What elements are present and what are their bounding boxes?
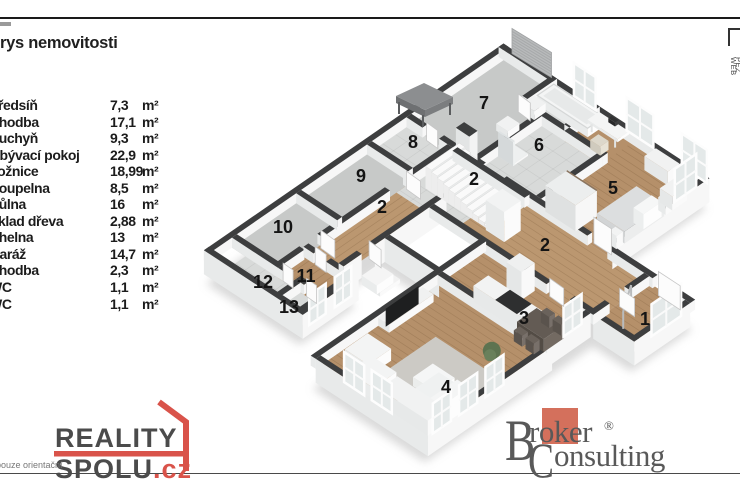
svg-text:12: 12 xyxy=(253,272,273,292)
svg-text:2: 2 xyxy=(377,197,387,217)
svg-text:2: 2 xyxy=(540,235,550,255)
svg-text:6: 6 xyxy=(534,135,544,155)
svg-text:1: 1 xyxy=(640,309,650,329)
svg-text:5: 5 xyxy=(608,178,618,198)
svg-text:2: 2 xyxy=(469,169,479,189)
svg-text:4: 4 xyxy=(441,377,451,397)
svg-text:3: 3 xyxy=(519,308,529,328)
svg-text:11: 11 xyxy=(296,266,315,286)
svg-text:10: 10 xyxy=(273,217,293,237)
svg-text:8: 8 xyxy=(408,132,418,152)
svg-text:7: 7 xyxy=(479,93,489,113)
svg-text:9: 9 xyxy=(356,166,366,186)
svg-text:13: 13 xyxy=(279,297,299,317)
